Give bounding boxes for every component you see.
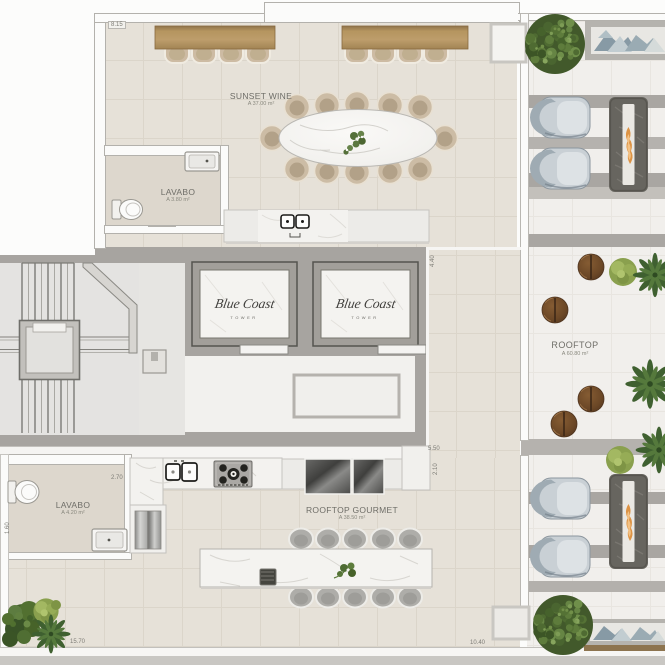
svg-text:TOWER: TOWER xyxy=(351,315,378,320)
svg-text:Blue Coast: Blue Coast xyxy=(214,296,277,311)
svg-text:Blue Coast: Blue Coast xyxy=(335,296,398,311)
svg-text:TOWER: TOWER xyxy=(230,315,257,320)
